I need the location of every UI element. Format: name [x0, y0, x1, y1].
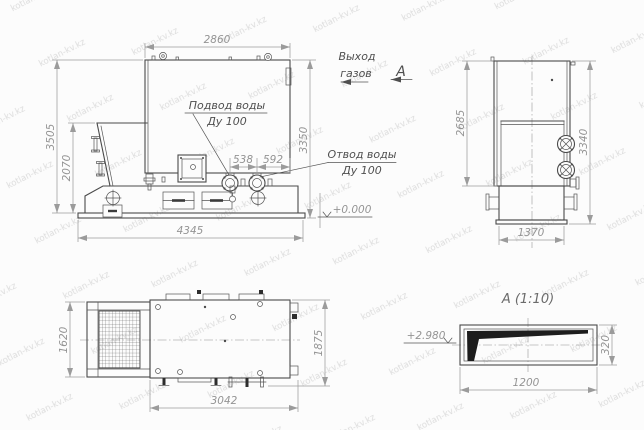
- technical-drawing-canvas: kotlan-kv.kz kotlan-kv.kz: [0, 0, 644, 430]
- water-supply-label-line1: Подвод воды: [189, 99, 266, 112]
- gas-exit-line2: газов: [340, 67, 372, 80]
- lifting-eye-left: [159, 52, 166, 59]
- dim-538: 538: [233, 154, 253, 166]
- gas-exit-line1: Выход: [338, 50, 375, 63]
- dim-4345: 4345: [177, 225, 204, 237]
- dim-320: 320: [600, 335, 612, 355]
- detail-title: А (1:10): [501, 292, 554, 307]
- dim-3340: 3340: [578, 128, 590, 155]
- base-panel-small: [103, 205, 122, 217]
- base-panel-2: [202, 192, 232, 209]
- dim-2860: 2860: [204, 34, 231, 46]
- dim-2685: 2685: [455, 109, 467, 136]
- base-panel-1: [163, 192, 194, 209]
- dim-3042: 3042: [211, 395, 238, 407]
- side-valve-upper: [558, 136, 575, 153]
- dim-3350: 3350: [298, 126, 310, 153]
- dim-3505: 3505: [45, 123, 57, 150]
- water-return-label-line1: Отвод воды: [328, 148, 397, 161]
- dim-592: 592: [263, 154, 283, 166]
- water-supply-label-line2: Ду 100: [206, 115, 247, 128]
- level-zero-text: +0.000: [333, 204, 372, 216]
- dim-1370: 1370: [518, 227, 545, 239]
- level-2980-text: +2.980: [407, 330, 446, 342]
- dim-1875: 1875: [313, 329, 325, 356]
- dim-2070: 2070: [61, 154, 73, 181]
- dim-1620: 1620: [58, 326, 70, 353]
- lifting-eye-right: [264, 53, 271, 60]
- side-valve-lower: [558, 162, 575, 179]
- dim-1200: 1200: [513, 377, 540, 389]
- section-letter: А: [395, 64, 406, 80]
- water-return-label-line2: Ду 100: [341, 164, 382, 177]
- drawing-svg: kotlan-kv.kz kotlan-kv.kz: [0, 0, 644, 430]
- front-hatch: [178, 155, 206, 182]
